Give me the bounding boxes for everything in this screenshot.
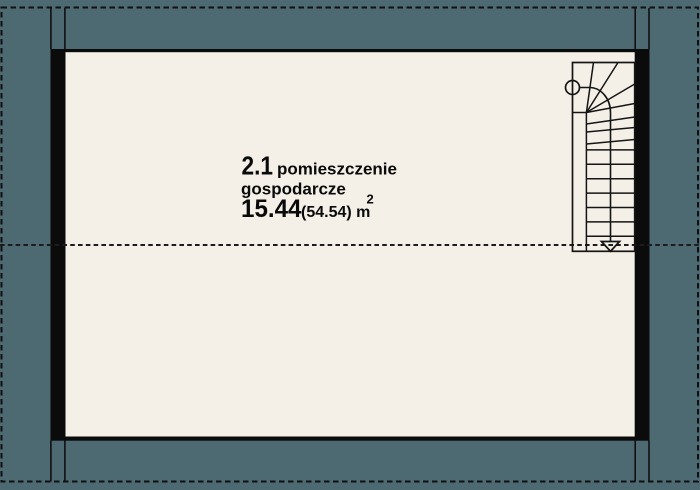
- svg-text:pomieszczenie: pomieszczenie: [277, 160, 397, 179]
- svg-text:2: 2: [367, 191, 374, 206]
- svg-text:15.44: 15.44: [241, 195, 302, 223]
- svg-text:2.1: 2.1: [242, 153, 274, 181]
- svg-text:(54.54) m: (54.54) m: [301, 204, 370, 221]
